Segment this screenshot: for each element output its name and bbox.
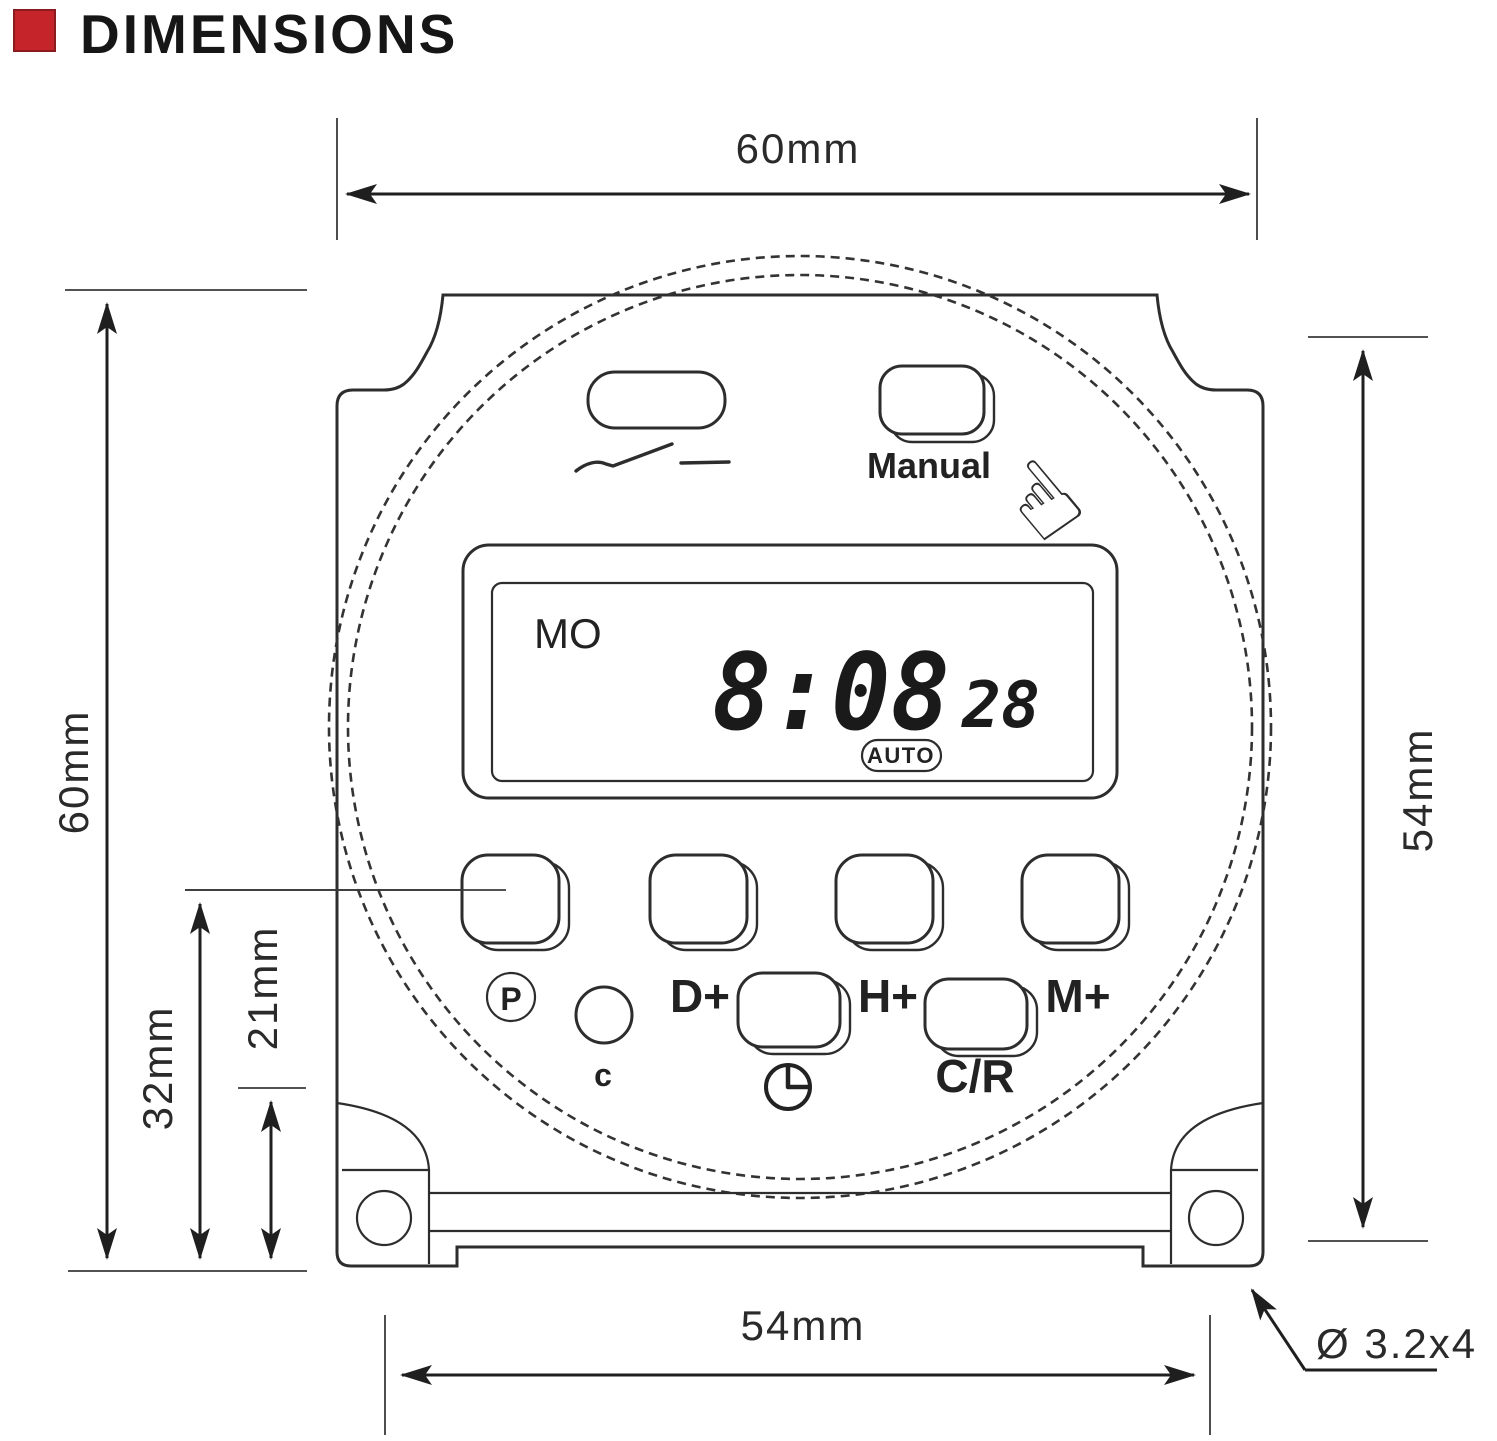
title-accent-square: [14, 10, 55, 51]
hole-label: Ø 3.2x4: [1316, 1320, 1477, 1367]
dim-right-height: 54mm: [1308, 337, 1441, 1241]
dim-32mm: 32mm: [134, 890, 506, 1258]
switch-contact-icon: [576, 444, 729, 471]
manual-button-face: [880, 366, 984, 434]
dim-right-label: 54mm: [1394, 728, 1441, 853]
button-p: P: [462, 855, 569, 1021]
tab-left-edges: [342, 1170, 429, 1264]
hole-leader-arrow: [1252, 1290, 1305, 1370]
button-c-face: [576, 987, 632, 1043]
tab-right-edges: [1171, 1170, 1258, 1264]
button-cr: C/R: [925, 979, 1037, 1102]
lcd-time-digits: 8:08: [712, 631, 950, 754]
button-d-plus-face: [650, 855, 747, 943]
pointing-hand-icon: ☝: [981, 436, 1105, 567]
manual-button: Manual: [867, 366, 994, 486]
lcd-day-text: MO: [534, 610, 602, 657]
auto-mode-text: AUTO: [867, 743, 935, 768]
clock-icon: [766, 1065, 810, 1109]
dim-32-label: 32mm: [134, 1006, 181, 1131]
button-h-plus-face: [836, 855, 933, 943]
button-c-label: c: [594, 1057, 612, 1093]
screw-hole-left: [357, 1191, 411, 1245]
mounting-tab-right: [1171, 1103, 1263, 1264]
button-c: c: [576, 987, 632, 1093]
dim-top-label: 60mm: [736, 125, 861, 172]
dim-top-width: 60mm: [337, 118, 1257, 240]
button-m-plus-face: [1022, 855, 1119, 943]
button-cr-label: C/R: [935, 1050, 1014, 1102]
timer-device-drawing: Manual ☝ MO 8:08 28 AUTO P D+ H+: [185, 256, 1271, 1266]
button-clock-face: [738, 973, 840, 1047]
page-title-text: DIMENSIONS: [80, 3, 458, 65]
dim-bottom-width: 54mm: [385, 1302, 1210, 1435]
button-cr-face: [925, 979, 1027, 1049]
dim-bottom-label: 54mm: [741, 1302, 866, 1349]
lcd-seconds-digits: 28: [961, 669, 1040, 743]
mounting-hole-callout: Ø 3.2x4: [1252, 1290, 1477, 1370]
tab-left-shoulder: [337, 1103, 429, 1170]
dim-21mm: 21mm: [238, 926, 306, 1258]
button-m-plus-label: M+: [1045, 970, 1110, 1022]
button-p-face: [462, 855, 559, 943]
dimensions-diagram-page: DIMENSIONS 60mm 60mm 32mm 21mm 54mm: [0, 0, 1497, 1441]
tab-right-shoulder: [1171, 1103, 1263, 1170]
button-d-plus-label: D+: [670, 970, 730, 1022]
button-m-plus: M+: [1022, 855, 1129, 1022]
button-p-label: P: [500, 981, 521, 1017]
dim-left-label: 60mm: [50, 710, 97, 835]
output-indicator-window: [588, 372, 725, 428]
button-clock: [738, 973, 850, 1109]
mounting-tab-left: [337, 1103, 429, 1264]
dim-21-label: 21mm: [239, 926, 286, 1051]
manual-button-label: Manual: [867, 445, 991, 486]
page-title: DIMENSIONS: [14, 3, 458, 65]
screw-hole-right: [1189, 1191, 1243, 1245]
lcd-display: MO 8:08 28 AUTO: [463, 545, 1117, 798]
button-h-plus-label: H+: [858, 970, 918, 1022]
